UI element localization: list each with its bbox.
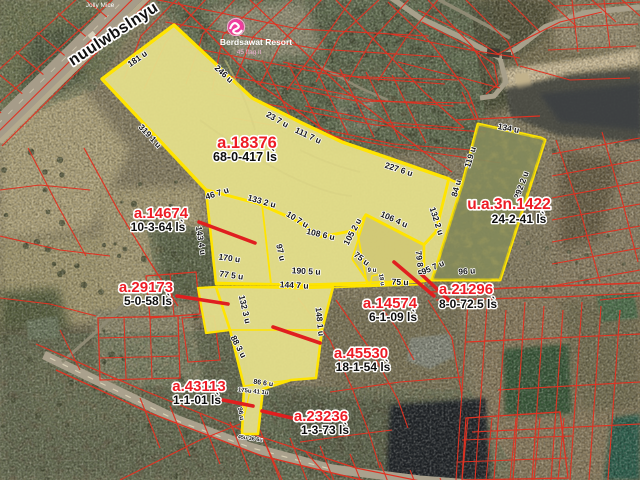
svg-text:10-3-64 ls̀: 10-3-64 ls̀ <box>131 219 186 234</box>
svg-text:5-0-58 ls̀: 5-0-58 ls̀ <box>124 293 172 308</box>
svg-text:96 u: 96 u <box>458 265 476 276</box>
svg-text:68-0-417 ls̀: 68-0-417 ls̀ <box>213 149 277 164</box>
svg-text:6-1-09 ls̀: 6-1-09 ls̀ <box>369 309 417 324</box>
svg-text:Berdsawat Resort: Berdsawat Resort <box>220 37 292 47</box>
svg-text:u.a.3n.1422: u.a.3n.1422 <box>467 196 551 213</box>
svg-text:Jolly Mice: Jolly Mice <box>86 2 115 9</box>
svg-text:1-3-73 ls̀: 1-3-73 ls̀ <box>301 422 349 437</box>
svg-text:24-2-41 ls̀: 24-2-41 ls̀ <box>492 211 547 226</box>
svg-text:190 5 u: 190 5 u <box>292 265 321 276</box>
svg-text:75 u: 75 u <box>391 277 409 288</box>
svg-text:144 7 u: 144 7 u <box>280 279 309 290</box>
svg-text:8-0-72.5 ls̀: 8-0-72.5 ls̀ <box>439 296 497 311</box>
svg-text:18-1-54 ls̀: 18-1-54 ls̀ <box>336 359 391 374</box>
svg-text:9 u: 9 u <box>368 268 377 274</box>
svg-text:45 flag it: 45 flag it <box>237 49 262 56</box>
svg-text:1-1-01 ls̀: 1-1-01 ls̀ <box>173 392 221 407</box>
svg-text:a.21296: a.21296 <box>439 281 493 298</box>
